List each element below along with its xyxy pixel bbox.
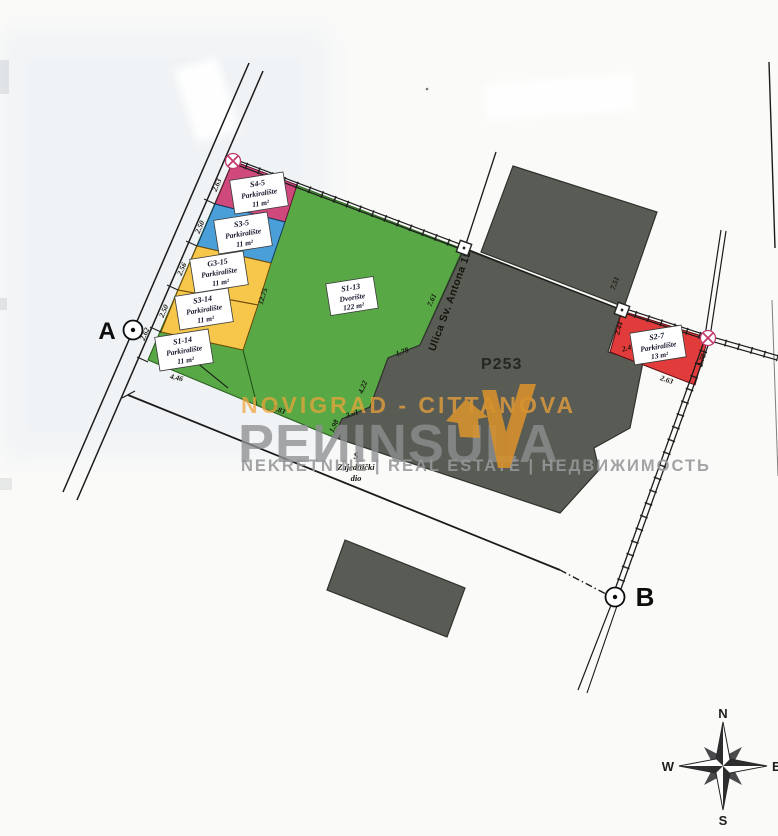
scan-edge-mark bbox=[0, 478, 12, 490]
building-parcel-number: P253 bbox=[481, 356, 522, 373]
x-marker-east bbox=[701, 331, 716, 346]
road-below-b-line-a bbox=[578, 600, 613, 690]
scan-edge-mark bbox=[0, 60, 9, 94]
point-b-label: B bbox=[636, 582, 655, 612]
far-right-road-line bbox=[769, 62, 775, 248]
site-plan-drawing: P253 Ulica Sv. Antona 15 bbox=[0, 0, 778, 836]
point-b-marker: B bbox=[606, 582, 655, 612]
compass-east-label: E bbox=[772, 759, 778, 774]
watermark-tagline-text: NEKRETNINE | REAL ESTATE | НЕДВИЖИМОСТЬ bbox=[241, 457, 711, 475]
compass-rose: N E S W bbox=[662, 706, 778, 828]
compass-west-label: W bbox=[662, 759, 675, 774]
parcel-label-s1-13: S1-13 Dvorište 122 m² bbox=[326, 276, 378, 315]
x-marker-northwest bbox=[226, 154, 241, 169]
scanned-site-plan-page: P253 Ulica Sv. Antona 15 bbox=[0, 0, 778, 836]
far-right-road-line-lower bbox=[772, 300, 778, 476]
road-below-b-line-b bbox=[587, 603, 618, 693]
watermark: NOVIGRAD - CITTANOVA PEИINSULA NEKRETNIN… bbox=[238, 384, 711, 475]
point-a-label: A bbox=[98, 318, 115, 345]
compass-dark-halves bbox=[679, 722, 767, 810]
compass-north-label: N bbox=[718, 706, 727, 721]
compass-south-label: S bbox=[719, 813, 728, 828]
building-lower bbox=[327, 540, 465, 637]
scan-white-patch bbox=[484, 74, 636, 120]
south-boundary-dashdot bbox=[560, 570, 606, 594]
scan-edge-mark bbox=[0, 298, 7, 310]
scan-speck bbox=[426, 88, 429, 91]
